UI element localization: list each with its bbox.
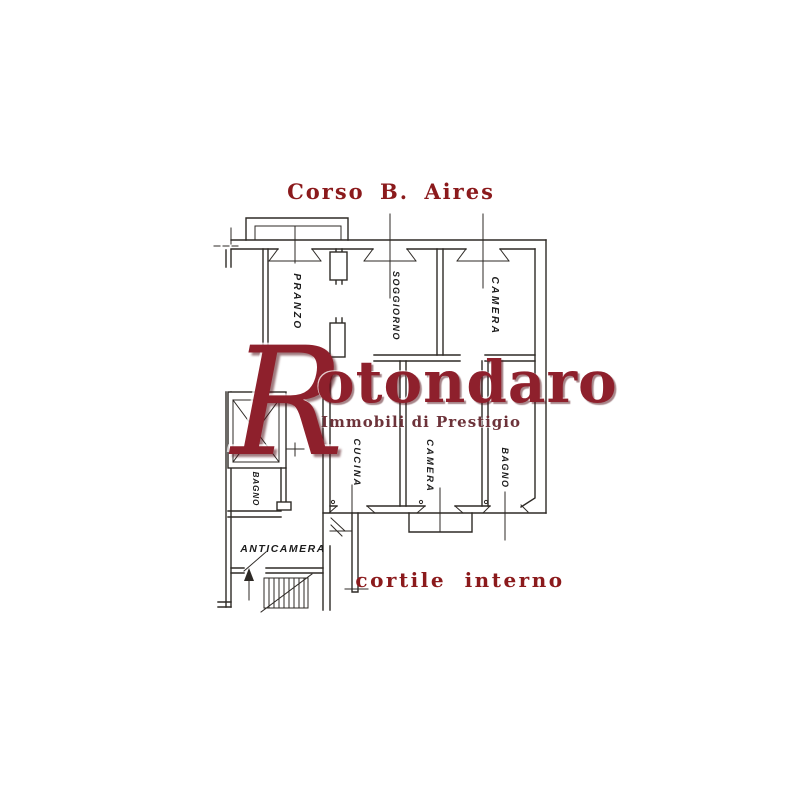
street-label: Corso B. Aires — [191, 179, 591, 204]
entrance-arrow — [244, 568, 254, 600]
watermark-tagline: Immobili di Prestigio — [271, 413, 571, 431]
listing-floorplan-image: PRANZO SOGGIORNO CAMERA CUCINA CAMERA BA… — [0, 0, 800, 800]
watermark-name: otondaro — [316, 353, 618, 411]
room-label-camera-bottom: CAMERA — [424, 439, 435, 493]
window-bottom-3 — [483, 492, 528, 540]
window-top-1 — [269, 227, 321, 263]
staircase — [261, 574, 312, 612]
balcony-street — [246, 218, 348, 240]
room-label-anticamera: ANTICAMERA — [239, 543, 326, 555]
room-label-cucina: CUCINA — [351, 439, 362, 488]
window-bottom-2 — [417, 488, 463, 532]
service-door-leaf — [331, 518, 345, 536]
room-label-camera-top: CAMERA — [489, 277, 500, 336]
window-top-3 — [457, 214, 509, 288]
room-label-soggiorno: SOGGIORNO — [391, 271, 401, 341]
window-top-2 — [364, 214, 416, 298]
boundary-stubs — [214, 228, 238, 267]
courtyard-label: cortile interno — [310, 568, 610, 592]
flue-block — [330, 252, 347, 280]
room-label-bagno-main: BAGNO — [500, 448, 510, 489]
bath-door-jamb — [277, 502, 291, 510]
